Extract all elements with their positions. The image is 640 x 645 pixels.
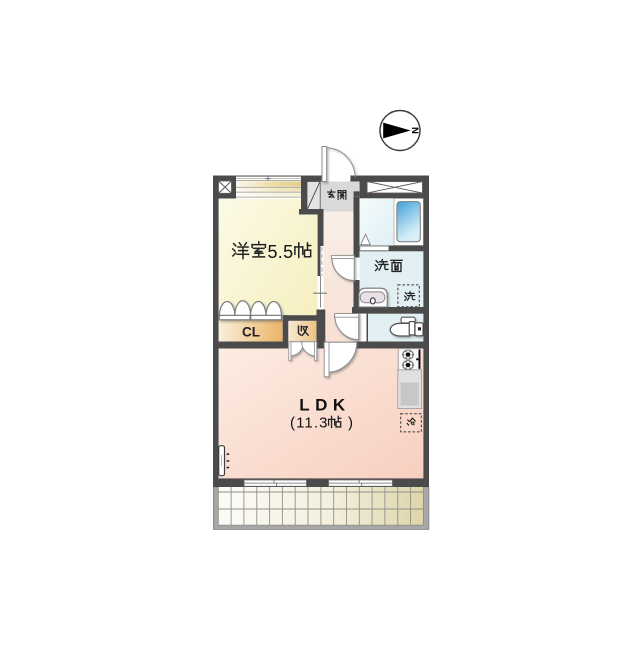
svg-text:5.5: 5.5 <box>268 242 294 262</box>
svg-text:CL: CL <box>242 325 260 340</box>
svg-text:(11.3: (11.3 <box>290 414 329 431</box>
svg-text:LDK: LDK <box>299 396 350 415</box>
svg-text:): ) <box>348 414 353 431</box>
svg-text:N: N <box>409 127 420 134</box>
